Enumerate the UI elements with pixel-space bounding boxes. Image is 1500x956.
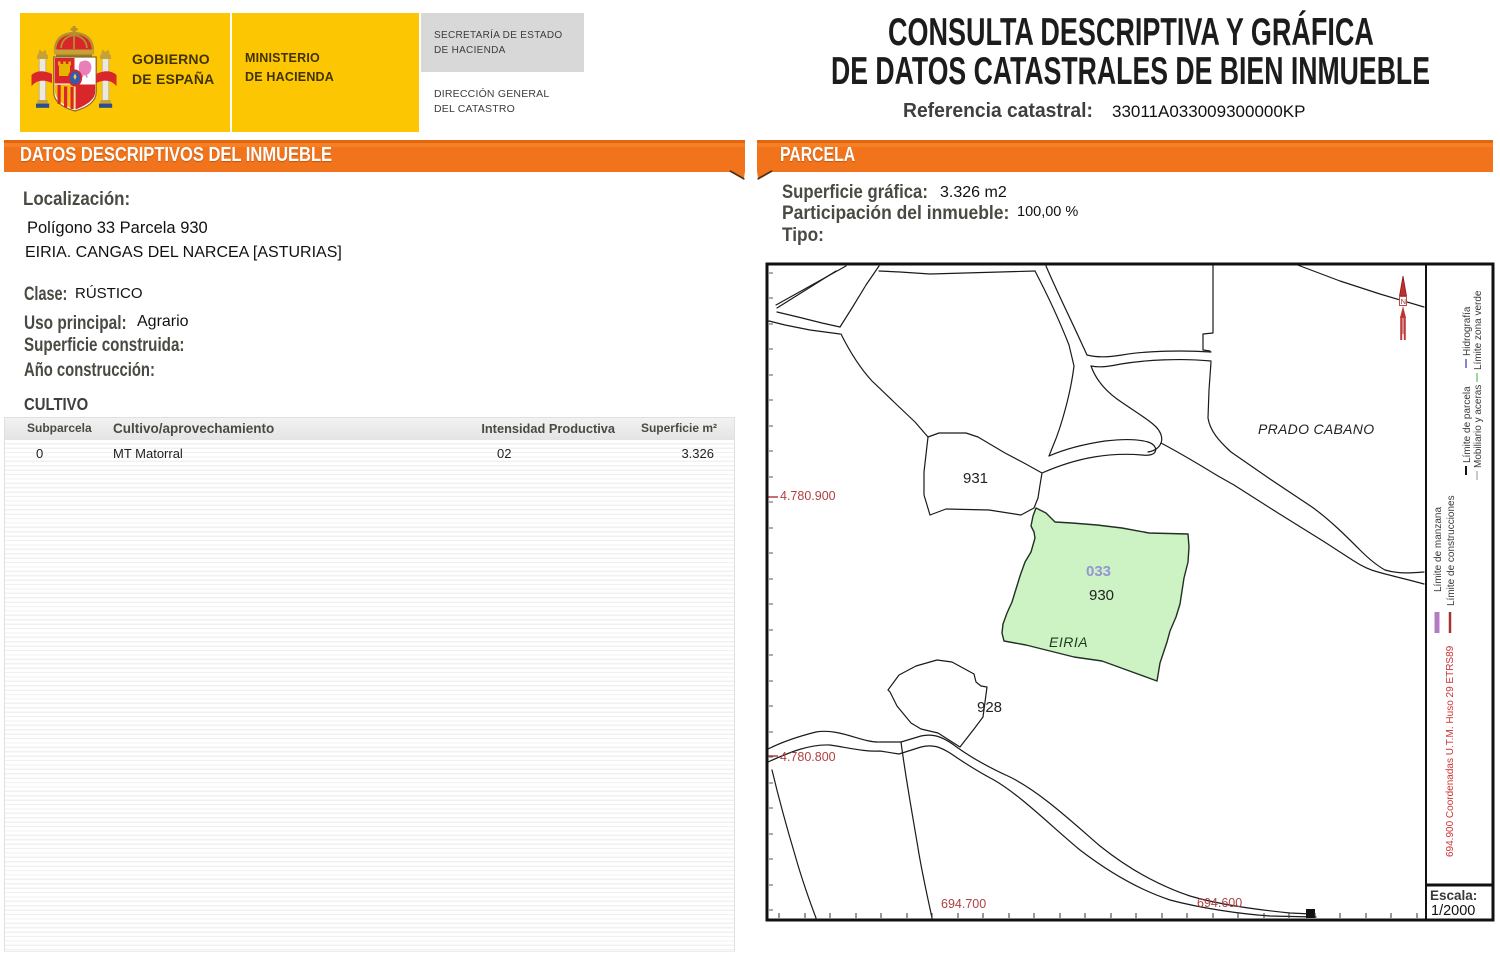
svg-text:Mobiliario y aceras: Mobiliario y aceras [1473, 385, 1484, 468]
svg-text:PRADO CABANO: PRADO CABANO [1258, 421, 1374, 437]
svg-text:Límite zona verde: Límite zona verde [1473, 290, 1484, 370]
svg-text:928: 928 [977, 699, 1002, 716]
svg-text:4.780.900: 4.780.900 [780, 489, 836, 503]
svg-text:694.900 Coordenadas U.T.M. Hus: 694.900 Coordenadas U.T.M. Huso 29 ETRS8… [1445, 645, 1456, 857]
svg-text:4.780.800: 4.780.800 [780, 750, 836, 764]
svg-text:930: 930 [1089, 587, 1114, 604]
svg-text:931: 931 [963, 470, 988, 487]
svg-text:Límite de parcela: Límite de parcela [1462, 386, 1473, 463]
svg-text:EIRIA: EIRIA [1049, 634, 1088, 650]
svg-text:Límite de manzana: Límite de manzana [1433, 507, 1444, 592]
svg-text:Escala:: Escala: [1430, 888, 1477, 903]
svg-text:694.600: 694.600 [1197, 896, 1242, 910]
svg-text:033: 033 [1086, 563, 1111, 580]
svg-text:N: N [1401, 297, 1406, 306]
svg-text:Límite de construcciones: Límite de construcciones [1446, 495, 1457, 606]
svg-text:Hidrografía: Hidrografía [1462, 306, 1473, 356]
svg-text:694.700: 694.700 [941, 897, 986, 911]
svg-text:1/2000: 1/2000 [1431, 903, 1475, 919]
